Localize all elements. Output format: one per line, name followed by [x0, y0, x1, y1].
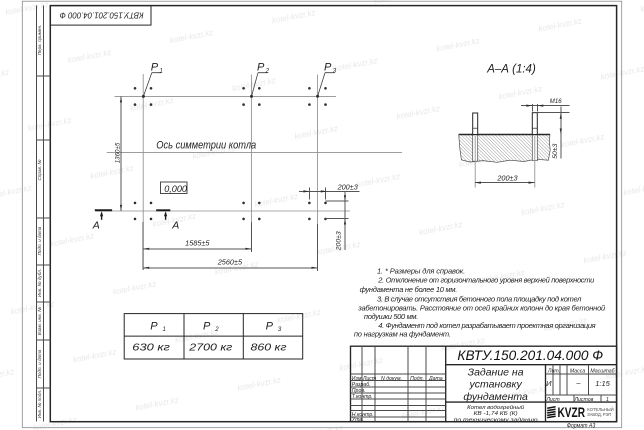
- svg-text:КВ -1,74 КБ (К): КВ -1,74 КБ (К): [474, 411, 518, 417]
- svg-text:Перв. примен.: Перв. примен.: [37, 25, 42, 56]
- svg-text:P: P: [257, 62, 265, 74]
- svg-text:1:15: 1:15: [595, 379, 610, 388]
- svg-text:P: P: [203, 321, 211, 333]
- svg-text:KVZR: KVZR: [558, 404, 586, 420]
- svg-text:2700 кг: 2700 кг: [188, 343, 232, 354]
- svg-text:установку: установку: [468, 379, 522, 391]
- svg-text:Подп. и дата: Подп. и дата: [37, 349, 42, 378]
- svg-text:2560±5: 2560±5: [217, 258, 243, 267]
- svg-text:–: –: [575, 378, 581, 387]
- svg-text:2: 2: [214, 327, 219, 333]
- svg-text:фундамента не более 10 мм.: фундамента не более 10 мм.: [360, 285, 458, 294]
- svg-text:Подп.: Подп.: [410, 376, 424, 382]
- svg-text:Взам. инв. №: Взам. инв. №: [37, 307, 42, 335]
- svg-text:1: 1: [160, 69, 163, 75]
- svg-text:Справ. №: Справ. №: [37, 160, 42, 181]
- svg-text:подушки 500 мм.: подушки 500 мм.: [364, 312, 418, 321]
- svg-text:50±3: 50±3: [552, 143, 559, 158]
- svg-text:фундамента: фундамента: [463, 391, 528, 403]
- svg-text:Утв.: Утв.: [352, 417, 364, 423]
- svg-text:Ось симметрии котла: Ось симметрии котла: [156, 139, 256, 151]
- svg-text:ЗАВОД, РЭП: ЗАВОД, РЭП: [587, 412, 611, 417]
- svg-text:4. Фундамент под котел разраб: 4. Фундамент под котел разрабатывает про…: [378, 321, 595, 330]
- svg-text:Лит.: Лит.: [547, 368, 560, 374]
- svg-text:P: P: [324, 62, 332, 74]
- svg-text:Лист: Лист: [545, 397, 560, 403]
- svg-text:200±3: 200±3: [336, 231, 343, 251]
- svg-text:1. * Размеры для справок.: 1. * Размеры для справок.: [377, 267, 465, 276]
- svg-text:КВТУ.150.201.04.000 Ф: КВТУ.150.201.04.000 Ф: [457, 348, 603, 363]
- svg-text:Задание на: Задание на: [468, 367, 524, 379]
- svg-text:Масштаб: Масштаб: [590, 368, 615, 374]
- svg-text:P: P: [150, 321, 158, 333]
- svg-text:860 кг: 860 кг: [251, 343, 287, 354]
- svg-text:Изм.Лист: Изм.Лист: [352, 376, 377, 382]
- svg-text:A: A: [171, 220, 179, 232]
- svg-text:КОТЕЛЬНЫЙ: КОТЕЛЬНЫЙ: [587, 407, 613, 412]
- svg-text:2. Отклонение от горизонтальн: 2. Отклонение от горизонтального уровня …: [377, 276, 595, 285]
- svg-text:Инв. № подл.: Инв. № подл.: [37, 390, 42, 419]
- svg-text:200±3: 200±3: [496, 173, 517, 182]
- svg-text:Масса: Масса: [570, 368, 585, 374]
- svg-text:P: P: [151, 62, 159, 74]
- svg-text:1: 1: [163, 327, 166, 333]
- svg-text:1585±5: 1585±5: [185, 239, 210, 248]
- svg-text:по техническому заданию: по техническому заданию: [454, 417, 539, 423]
- svg-text:Формат А3: Формат А3: [567, 423, 596, 429]
- svg-text:A: A: [92, 220, 100, 232]
- svg-text:Инв. № дубл.: Инв. № дубл.: [37, 269, 42, 297]
- svg-text:И: И: [546, 379, 552, 388]
- svg-text:по нагрузкам на фундамент.: по нагрузкам на фундамент.: [354, 330, 451, 339]
- svg-text:Пров.: Пров.: [352, 388, 366, 394]
- svg-text:P: P: [266, 321, 274, 333]
- svg-text:М16: М16: [550, 98, 562, 105]
- svg-text:Подп. и дата: Подп. и дата: [37, 226, 42, 255]
- svg-text:забетонировать. Расстояние от: забетонировать. Расстояние от осей крайн…: [357, 303, 606, 312]
- svg-text:0,000: 0,000: [164, 184, 187, 195]
- svg-text:200±3: 200±3: [337, 182, 358, 191]
- svg-text:КВТУ.150.201.04.000 Ф: КВТУ.150.201.04.000 Ф: [60, 10, 144, 19]
- svg-text:Котел водогрейный: Котел водогрейный: [467, 404, 525, 411]
- svg-text:А–А (1:4): А–А (1:4): [486, 64, 536, 76]
- svg-text:3. В случае отсутствия бетонн: 3. В случае отсутствия бетонного пола пл…: [377, 294, 582, 303]
- svg-text:630 кг: 630 кг: [132, 343, 170, 354]
- svg-text:Т.контр.: Т.контр.: [352, 394, 373, 400]
- svg-text:Листов: Листов: [573, 397, 593, 403]
- svg-text:N докум.: N докум.: [381, 376, 402, 382]
- svg-text:1: 1: [606, 397, 609, 403]
- svg-text:2: 2: [265, 69, 270, 75]
- svg-text:1360±5: 1360±5: [114, 142, 121, 163]
- svg-text:Разраб.: Разраб.: [352, 382, 371, 388]
- svg-text:Дата: Дата: [428, 376, 443, 382]
